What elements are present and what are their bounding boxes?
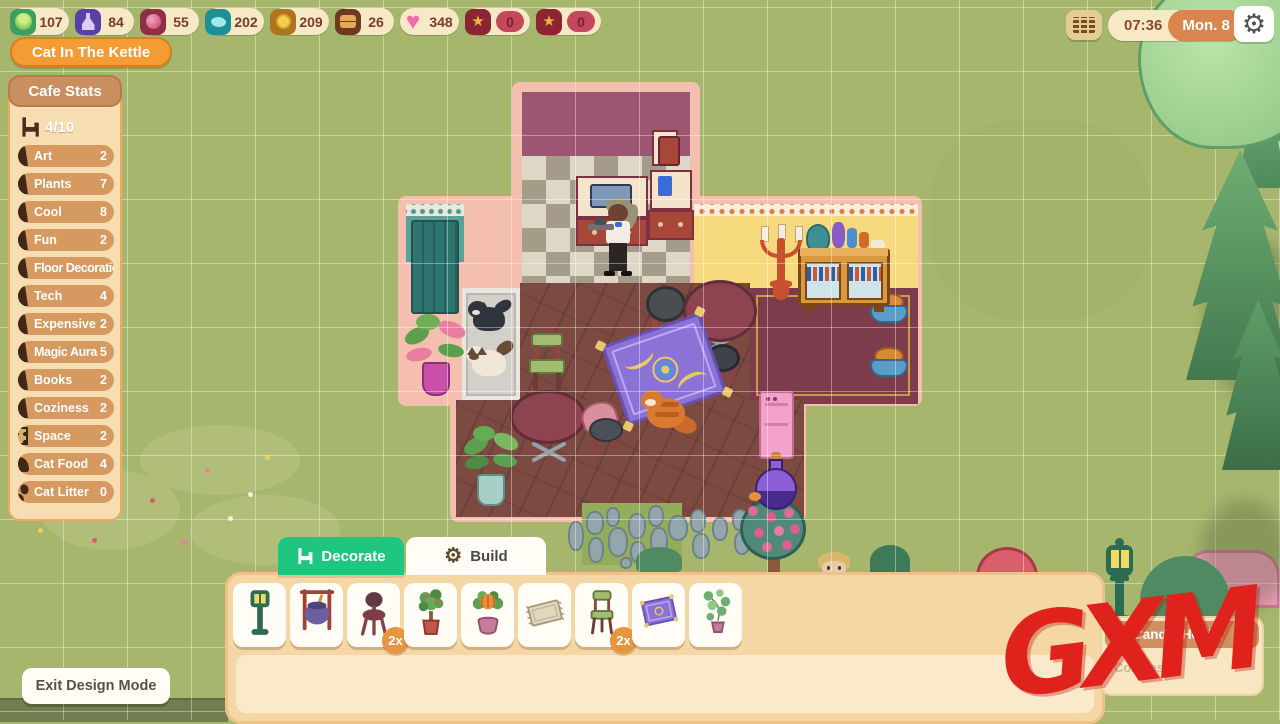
clock-date: Mon. 8 — [1168, 10, 1244, 41]
coffee-machine-counter[interactable] — [648, 130, 694, 246]
settings-button[interactable]: ⚙ — [1234, 6, 1274, 42]
glass-door — [805, 262, 841, 300]
blue-bottle — [847, 228, 857, 248]
decor-cone-icon — [18, 202, 28, 222]
stat-value: 2 — [100, 429, 107, 443]
teal-room-trim — [406, 204, 464, 216]
tab-decorate[interactable]: Decorate — [278, 537, 404, 575]
stat-label: Books — [34, 373, 72, 387]
stat-value: 2 — [100, 233, 107, 247]
chair-icon — [20, 117, 40, 137]
rug-item-icon — [526, 588, 564, 643]
inventory-slot-rug[interactable] — [518, 583, 571, 647]
pot — [477, 474, 505, 506]
black-cat[interactable] — [468, 297, 514, 339]
clock: 07:36 Mon. 8 — [1108, 10, 1244, 41]
flower — [248, 492, 253, 497]
inventory-panel-body — [236, 655, 1094, 713]
currency-coin: 209 — [270, 8, 329, 35]
pink-door[interactable] — [759, 391, 794, 459]
badge-paw-star: ★0 — [465, 8, 530, 35]
currency-value: 209 — [299, 14, 323, 30]
stat-value: 8 — [100, 205, 107, 219]
inventory-slot-vine-plant[interactable] — [689, 583, 742, 647]
potted-tree-icon — [412, 588, 450, 643]
stat-row-plants: Plants7 — [18, 173, 114, 195]
watermark: GXM — [994, 573, 1259, 715]
orange-cat[interactable] — [641, 390, 697, 440]
stat-label: Floor Decoration — [34, 261, 114, 275]
capacity-value: 4/10 — [45, 119, 74, 136]
coffee-machine-icon — [658, 136, 680, 166]
tab-label: Decorate — [321, 548, 385, 565]
berry-icon — [140, 9, 166, 35]
badge-star: ★0 — [536, 8, 601, 35]
decor-cone-icon — [18, 146, 28, 166]
decor-cone-icon — [18, 398, 28, 418]
stat-row-cat-litter: Cat Litter0 — [18, 481, 114, 503]
currency-fish: 202 — [205, 8, 264, 35]
bowtie — [615, 222, 622, 227]
flower — [205, 468, 210, 473]
bowl-icon — [18, 457, 29, 472]
inventory-slot-potted-tree[interactable] — [404, 583, 457, 647]
fish-icon — [205, 9, 231, 35]
flower — [38, 528, 43, 533]
yellow-room-trim — [694, 204, 918, 216]
inventory-slot-magic-carpet[interactable] — [632, 583, 685, 647]
stat-row-coziness: Coziness2 — [18, 397, 114, 419]
face — [608, 204, 628, 222]
cafe-stats-header: Cafe Stats — [8, 75, 122, 107]
pink-leaf-plant[interactable] — [404, 314, 466, 406]
currency-value: 84 — [104, 14, 128, 30]
currency-berry: 55 — [140, 8, 199, 35]
barista-character[interactable] — [596, 196, 640, 288]
chair-icon — [296, 548, 313, 565]
cauldron-icon — [298, 588, 336, 643]
round-table[interactable] — [510, 390, 586, 468]
lamp-post-icon — [241, 588, 279, 643]
flower — [228, 516, 233, 521]
stat-row-cat-food: Cat Food4 — [18, 453, 114, 475]
potion-flask[interactable] — [753, 452, 799, 514]
coin-icon — [270, 9, 296, 35]
decor-cone-icon — [18, 342, 28, 362]
paw-star-icon: ★ — [465, 9, 491, 35]
currency-hearts: ♥348 — [400, 8, 459, 35]
inventory-slot-lamp-post[interactable] — [233, 583, 286, 647]
vine-plant-icon — [697, 588, 735, 643]
teal-door[interactable] — [411, 220, 459, 314]
siamese-cat[interactable] — [466, 340, 516, 384]
bush — [636, 547, 682, 573]
stat-label: Cat Food — [34, 457, 88, 471]
stat-value: 4 — [100, 457, 107, 471]
exit-design-mode-button[interactable]: Exit Design Mode — [22, 668, 170, 704]
cabbage-icon — [10, 9, 36, 35]
stat-value: 5 — [100, 345, 107, 359]
inventory-slot-cauldron[interactable] — [290, 583, 343, 647]
cafe-stats-panel: Cafe Stats 4/10 Art2 Plants7 Cool8 Fun2 … — [8, 75, 122, 521]
grass-patch — [930, 120, 1150, 320]
green-chair[interactable] — [529, 333, 567, 393]
inventory-slot-red-stool[interactable]: 2x — [347, 583, 400, 647]
currency-value: 26 — [364, 14, 388, 30]
stat-value: 0 — [100, 485, 107, 499]
stat-row-floor-decoration: Floor Decoration — [18, 257, 114, 279]
cat-food-bowl[interactable] — [870, 347, 908, 381]
pink-chair[interactable] — [581, 402, 631, 456]
stat-value: 2 — [100, 373, 107, 387]
stat-value: 7 — [100, 177, 107, 191]
gear-icon: ⚙ — [1242, 11, 1266, 38]
stat-row-space: Space2 — [18, 425, 114, 447]
currency-furniture: 26 — [335, 8, 394, 35]
stat-row-fun: Fun2 — [18, 229, 114, 251]
cafe-name-button[interactable]: Cat In The Kettle — [10, 37, 172, 67]
decor-cone-icon — [18, 370, 28, 390]
rug-icon — [18, 427, 28, 445]
potion-icon — [75, 9, 101, 35]
furniture-box-icon — [335, 9, 361, 35]
stat-label: Cool — [34, 205, 62, 219]
star-badge-icon: ★ — [536, 9, 562, 35]
decor-cone-icon — [18, 286, 28, 306]
currency-potion: 84 — [75, 8, 134, 35]
badge-value: 0 — [567, 11, 595, 32]
gear-icon: ⚙ — [444, 546, 462, 566]
stat-label: Tech — [34, 289, 62, 303]
flower — [150, 498, 155, 503]
decor-cone-icon — [18, 258, 28, 278]
grid-toggle-button[interactable] — [1066, 10, 1102, 40]
stat-row-expensive: Expensive2 — [18, 313, 114, 335]
potion-cabinet[interactable] — [798, 234, 890, 312]
currency-value: 202 — [234, 14, 258, 30]
stat-value: 2 — [100, 149, 107, 163]
stat-value: 4 — [100, 289, 107, 303]
stat-label: Magic Aura — [34, 345, 97, 359]
currency-cabbage: 107 — [10, 8, 69, 35]
pumpkin-plant-icon — [469, 588, 507, 643]
potted-plant[interactable] — [463, 426, 519, 512]
stat-value: 2 — [100, 317, 107, 331]
decor-cone-icon — [18, 230, 28, 250]
inventory-slot-green-chair[interactable]: 2x — [575, 583, 628, 647]
currency-bar: 107 84 55 202 209 26 ♥348 ★0 ★0 — [10, 8, 601, 35]
stat-label: Art — [34, 149, 52, 163]
flower — [265, 455, 270, 460]
currency-value: 348 — [429, 14, 453, 30]
stat-row-tech: Tech4 — [18, 285, 114, 307]
stat-label: Space — [34, 429, 71, 443]
flower — [92, 538, 97, 543]
currency-value: 55 — [169, 14, 193, 30]
bricks-icon — [1073, 17, 1095, 33]
pants — [609, 243, 627, 271]
stat-label: Coziness — [34, 401, 89, 415]
seat-capacity: 4/10 — [20, 117, 74, 137]
badge-value: 0 — [496, 11, 524, 32]
inventory-slot-pumpkin-plant[interactable] — [461, 583, 514, 647]
pot — [422, 362, 450, 396]
paws-icon — [18, 483, 19, 495]
tab-build[interactable]: ⚙ Build — [406, 537, 546, 575]
orange-bottle — [859, 232, 869, 248]
decor-cone-icon — [18, 174, 28, 194]
stat-label: Fun — [34, 233, 57, 247]
stat-label: Cat Litter — [34, 485, 89, 499]
stat-row-magic-aura: Magic Aura5 — [18, 341, 114, 363]
tab-label: Build — [470, 548, 508, 565]
stat-row-cool: Cool8 — [18, 201, 114, 223]
currency-value: 107 — [39, 14, 63, 30]
stat-label: Expensive — [34, 317, 96, 331]
stat-row-art: Art2 — [18, 145, 114, 167]
flower — [182, 540, 187, 545]
glass-door — [847, 262, 883, 300]
magic-carpet-icon — [640, 588, 678, 643]
stat-value: 2 — [100, 401, 107, 415]
purple-flask — [832, 222, 845, 248]
heart-icon: ♥ — [400, 9, 426, 35]
stat-row-books: Books2 — [18, 369, 114, 391]
decor-cone-icon — [18, 314, 28, 334]
stat-label: Plants — [34, 177, 72, 191]
